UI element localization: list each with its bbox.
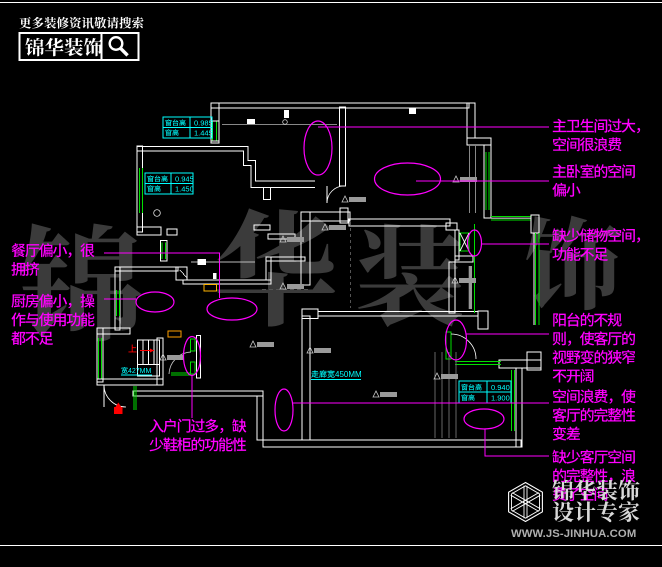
svg-text:1.445: 1.445 — [194, 128, 213, 137]
svg-text:0.945: 0.945 — [175, 175, 194, 184]
svg-text:0.985: 0.985 — [194, 119, 213, 128]
svg-text:0.940: 0.940 — [491, 383, 510, 392]
svg-text:450MM: 450MM — [335, 370, 362, 379]
svg-text:1.450: 1.450 — [175, 184, 194, 193]
svg-text:WWW.JS-JINHUA.COM: WWW.JS-JINHUA.COM — [511, 528, 636, 540]
svg-text:427MM: 427MM — [128, 368, 152, 375]
svg-text:1.900: 1.900 — [491, 393, 510, 402]
